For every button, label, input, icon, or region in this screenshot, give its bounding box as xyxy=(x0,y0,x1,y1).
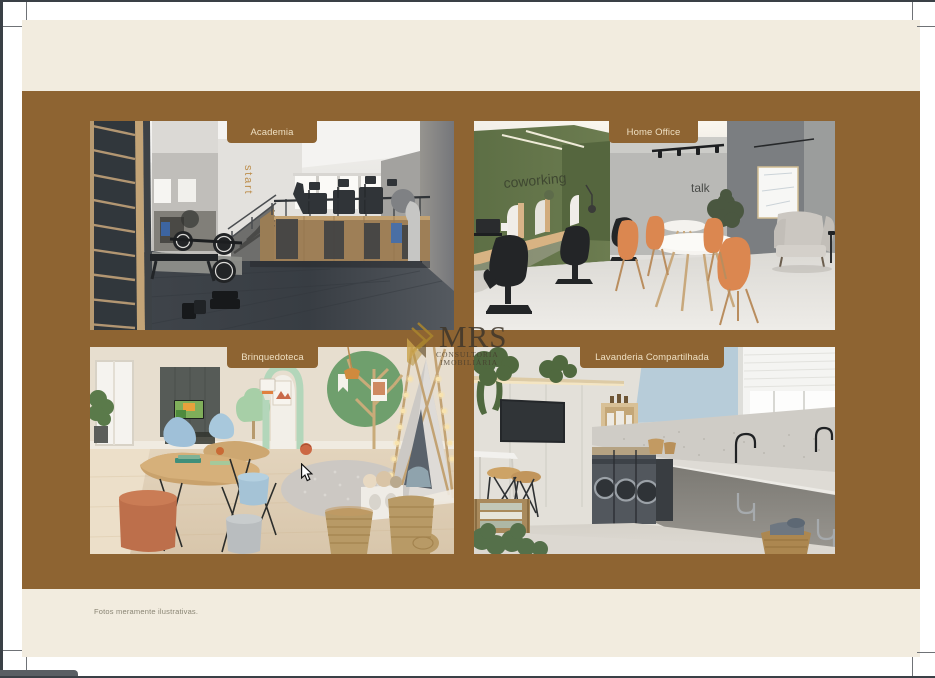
svg-text:talk: talk xyxy=(691,181,711,195)
svg-text:MRS: MRS xyxy=(439,320,507,354)
svg-text:IMOBILIÁRIA: IMOBILIÁRIA xyxy=(440,357,498,367)
svg-text:start: start xyxy=(242,165,254,195)
